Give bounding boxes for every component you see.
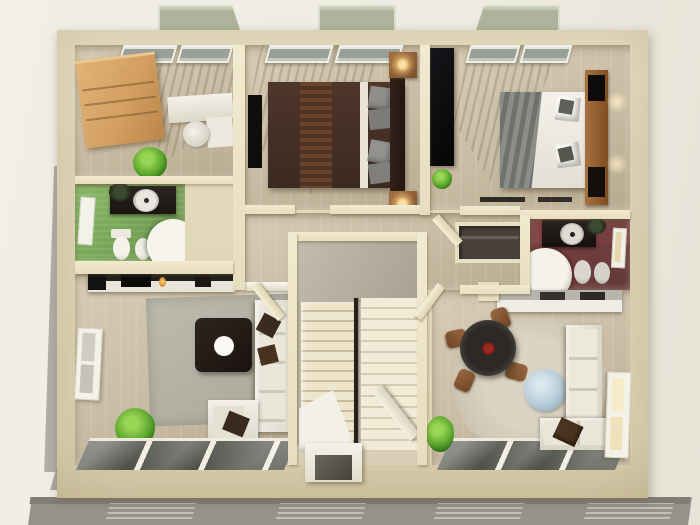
room-bedroom-middle xyxy=(245,45,420,210)
wardrobe xyxy=(75,51,165,148)
wall xyxy=(288,232,297,465)
potted-plant xyxy=(426,416,454,452)
window xyxy=(465,45,520,63)
wall xyxy=(330,205,420,214)
window xyxy=(264,45,333,63)
speaker xyxy=(88,274,106,290)
lower-storey-window xyxy=(434,503,524,519)
lower-storey-window xyxy=(276,503,366,519)
toilet xyxy=(574,260,591,284)
threshold-mat xyxy=(538,197,572,202)
wall xyxy=(245,205,295,214)
room-living xyxy=(75,274,292,465)
vanity-plant xyxy=(109,183,131,201)
hall-closet xyxy=(455,222,525,263)
room-red-bathroom xyxy=(530,218,630,290)
room-dining-living xyxy=(432,290,630,465)
potted-plant xyxy=(432,169,452,189)
lower-storey-window xyxy=(106,503,196,519)
window xyxy=(519,45,572,63)
headboard xyxy=(390,78,405,192)
wall xyxy=(75,261,233,274)
wall-sconce-glow xyxy=(606,91,628,113)
bidet xyxy=(594,262,610,284)
side-window xyxy=(74,327,103,400)
shelf-cubby xyxy=(588,167,605,197)
shelf-cubby xyxy=(588,75,605,101)
entry-closet-opening xyxy=(315,455,352,480)
wall xyxy=(420,45,430,215)
glazed-wall xyxy=(76,438,298,470)
mirror xyxy=(611,228,627,269)
room-bedroom-right xyxy=(430,45,630,210)
pillow xyxy=(368,86,393,111)
glass-coffee-table xyxy=(524,369,566,411)
desk-return xyxy=(206,116,234,148)
floor-plan-render xyxy=(0,0,700,525)
wall xyxy=(520,215,530,290)
sink xyxy=(560,223,584,245)
room-office-bedroom xyxy=(75,45,233,178)
room-stairwell xyxy=(297,240,417,465)
potted-plant xyxy=(133,147,167,179)
wall xyxy=(75,176,233,184)
pillow xyxy=(368,108,392,130)
pillow xyxy=(368,162,393,185)
wall-sconce-glow xyxy=(606,153,628,175)
lower-storey-window xyxy=(584,503,674,519)
black-wardrobe xyxy=(430,48,454,166)
toilet xyxy=(113,236,130,260)
office-chair xyxy=(183,121,209,147)
pillow xyxy=(555,96,581,122)
pillow xyxy=(555,142,582,169)
room-green-bathroom xyxy=(75,183,185,262)
bed-sheet-fold xyxy=(360,82,368,188)
sink xyxy=(133,189,159,212)
kitchen-appliance xyxy=(580,292,605,300)
side-window xyxy=(605,372,632,459)
wall xyxy=(520,210,630,219)
wall xyxy=(460,285,530,294)
wall xyxy=(233,45,245,290)
lamp xyxy=(395,57,410,72)
bed-throw xyxy=(300,82,332,188)
plate xyxy=(214,336,234,356)
media-box xyxy=(195,275,211,287)
wall-tv xyxy=(248,95,262,168)
vanity-plant xyxy=(586,218,606,234)
sectional-sofa xyxy=(566,325,602,425)
candle xyxy=(159,277,166,287)
wall xyxy=(417,232,427,465)
handrail xyxy=(354,298,358,454)
threshold-mat xyxy=(480,197,525,202)
window xyxy=(176,45,233,63)
wall xyxy=(460,206,520,215)
stair-landing xyxy=(297,240,417,302)
kitchen-appliance xyxy=(540,292,565,300)
table-centerpiece xyxy=(482,342,495,355)
wall xyxy=(297,232,417,241)
